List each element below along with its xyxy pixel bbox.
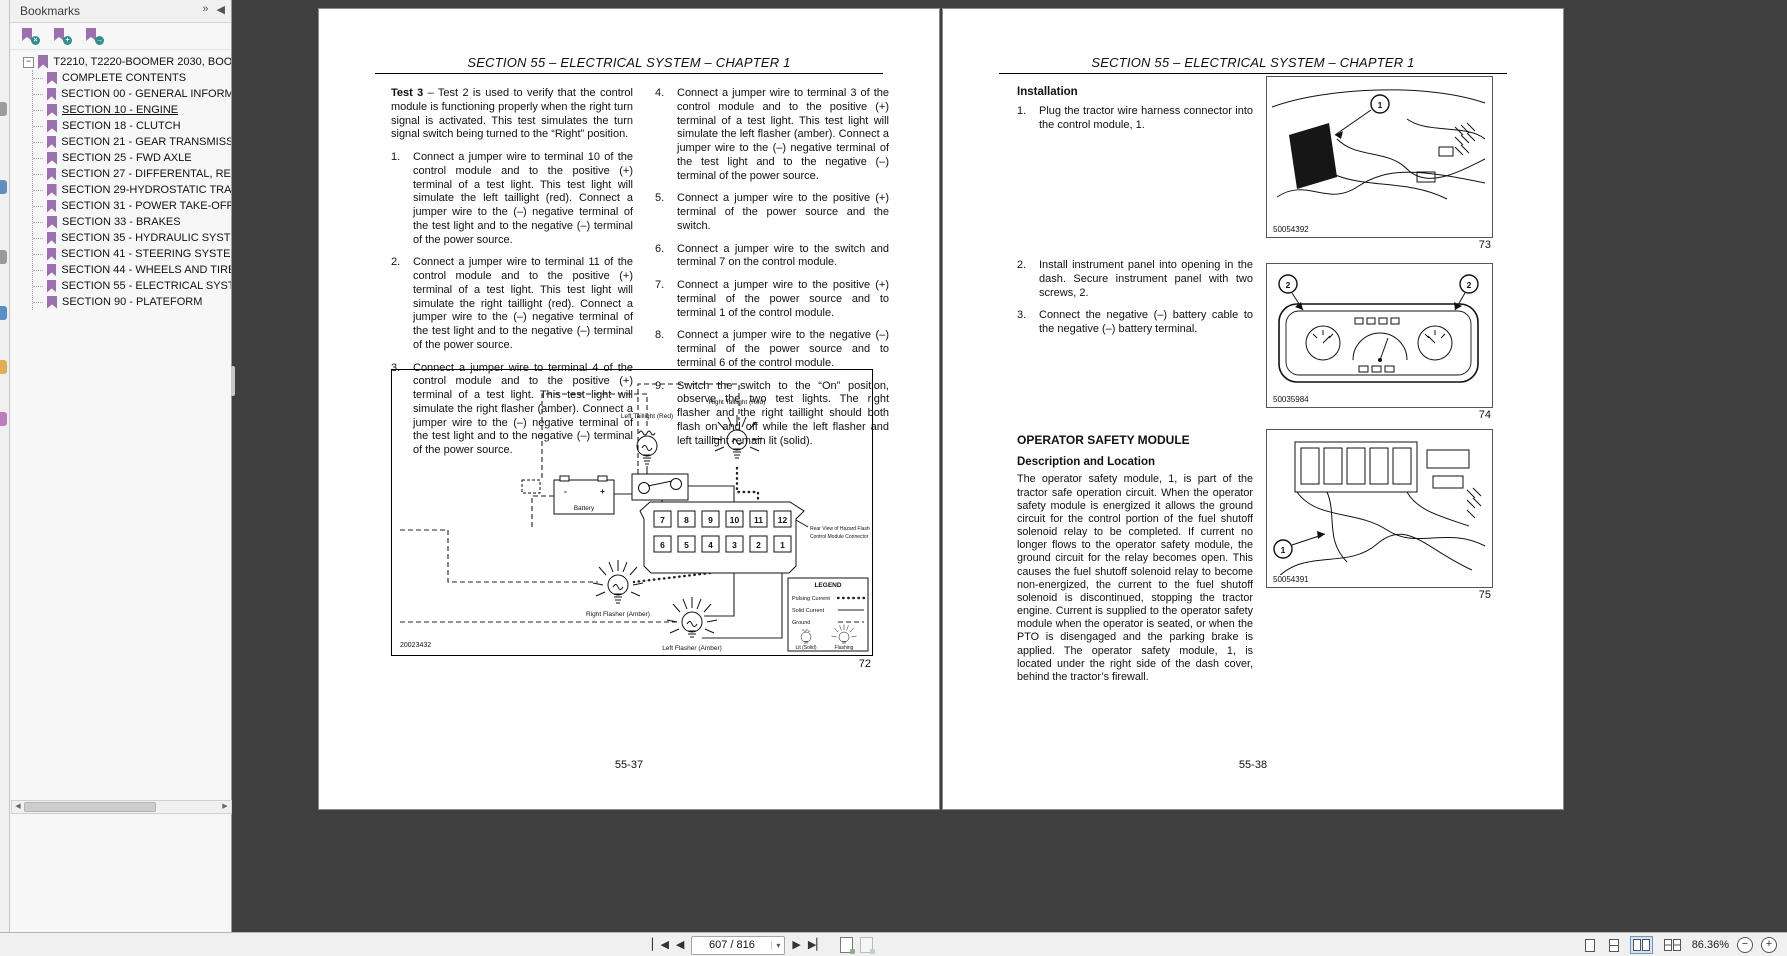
side-panel-icon[interactable] (0, 102, 7, 116)
battery-minus-label: - (564, 486, 567, 496)
bookmark-label: SECTION 55 - ELECTRICAL SYSTE (61, 280, 231, 292)
photo-code: 50054392 (1271, 225, 1311, 234)
right-taillight-bulb (712, 415, 762, 458)
bookmark-icon (47, 232, 56, 245)
section-header: SECTION 55 – ELECTRICAL SYSTEM – CHAPTER… (375, 55, 883, 70)
bookmark-item-section-21[interactable]: SECTION 21 - GEAR TRANSMISSIO (33, 134, 231, 150)
figure-number-74: 74 (1266, 409, 1491, 421)
ground-wire (532, 496, 554, 530)
bookmark-item-section-90[interactable]: SECTION 90 - PLATEFORM (33, 294, 231, 310)
single-page-view-icon[interactable] (1582, 936, 1598, 955)
side-panel-icon[interactable] (0, 360, 7, 374)
svg-text:9: 9 (708, 515, 713, 525)
artwork-connector (1417, 147, 1453, 182)
photo-code: 50035984 (1271, 395, 1311, 404)
svg-text:11: 11 (754, 515, 763, 525)
left-flasher-label: Left Flasher (Amber) (662, 645, 722, 652)
side-panel-icon[interactable] (0, 180, 7, 194)
figure-number-75: 75 (1266, 589, 1491, 601)
bookmark-icon (47, 200, 56, 213)
bottom-toolbar: ▏◀ ◀ 607 / 816 ▾ ▶ ▶▏ 86.36% − + (0, 932, 1787, 956)
svg-text:6: 6 (660, 540, 665, 550)
add-badge-icon: + (63, 36, 72, 45)
artwork-line (1333, 174, 1447, 199)
panel-horizontal-scrollbar[interactable]: ◀ ▶ (11, 800, 232, 814)
list-item: 6.Connect a jumper wire to the switch an… (655, 243, 889, 271)
item-number: 8. (655, 329, 669, 370)
bookmark-item-section-41[interactable]: SECTION 41 - STEERING SYSTEMS (33, 246, 231, 262)
legend-solid-label: Solid Current (792, 608, 825, 614)
figure-number-73: 73 (1266, 239, 1491, 251)
legend-title: LEGEND (814, 582, 841, 589)
bookmark-root[interactable]: − T2210, T2220-BOOMER 2030, BOOM (10, 54, 231, 70)
item-text: Connect a jumper wire to terminal 10 of … (413, 151, 633, 247)
bookmark-label: SECTION 33 - BRAKES (62, 216, 181, 228)
ground-wire (542, 394, 647, 478)
solid-wire (702, 573, 782, 638)
artwork-line (1297, 492, 1485, 546)
callout-leader (1335, 110, 1371, 135)
facing-continuous-view-icon[interactable] (1661, 936, 1684, 954)
control-module-art (1289, 123, 1337, 189)
item-text: Connect a jumper wire to the switch and … (677, 243, 889, 271)
battery-plus-label: + (600, 486, 605, 496)
zoom-out-button[interactable]: − (1737, 937, 1753, 953)
zoom-in-button[interactable]: + (1761, 937, 1777, 953)
list-item: 2.Connect a jumper wire to terminal 11 o… (391, 256, 633, 352)
bookmark-item-section-29[interactable]: SECTION 29-HYDROSTATIC TRAN (33, 182, 231, 198)
pdf-page-left: SECTION 55 – ELECTRICAL SYSTEM – CHAPTER… (318, 8, 940, 810)
bookmark-icon (47, 152, 57, 165)
osm-heading: OPERATOR SAFETY MODULE (1017, 433, 1253, 448)
scrollbar-thumb[interactable] (24, 802, 156, 812)
item-text: Connect a jumper wire to the positive (+… (677, 279, 889, 320)
intro-paragraph: Test 3 – Test 2 is used to verify that t… (391, 87, 633, 142)
bookmark-icon (47, 184, 57, 197)
splitter-grip-icon (231, 366, 235, 396)
item-number: 3. (1017, 309, 1031, 337)
left-flasher-bulb (667, 597, 717, 637)
caption-leader (796, 520, 808, 527)
item-text: Connect a jumper wire to the negative (–… (677, 329, 889, 370)
goto-bookmark-button[interactable]: → (86, 28, 102, 44)
wiring-diagram: - + Battery Switch 7 8 9 10 11 12 (391, 369, 873, 656)
last-page-button[interactable]: ▶▏ (808, 936, 825, 954)
page-number-input[interactable]: 607 / 816 ▾ (691, 936, 785, 955)
bookmark-icon (47, 264, 56, 277)
svg-text:5: 5 (684, 540, 689, 550)
bookmark-item-section-31[interactable]: SECTION 31 - POWER TAKE-OFF S (33, 198, 231, 214)
installation-block: Installation 1.Plug the tractor wire har… (1017, 85, 1253, 133)
item-text: Plug the tractor wire harness connector … (1039, 105, 1253, 133)
battery-label: Battery (574, 505, 595, 512)
osm-body: The operator safety module, 1, is part o… (1017, 473, 1253, 684)
ground-node (522, 480, 540, 493)
bookmark-label: SECTION 18 - CLUTCH (62, 120, 181, 132)
battery-terminal (560, 476, 569, 481)
diagram-part-number: 20023432 (400, 642, 431, 649)
side-icon-strip[interactable] (0, 0, 10, 932)
bookmark-icon (47, 120, 57, 133)
list-item: 3.Connect the negative (–) battery cable… (1017, 309, 1253, 337)
artwork-hatch (1467, 488, 1481, 518)
panel-splitter[interactable] (231, 0, 236, 932)
app-window: Bookmarks » ◀ × + → − T22 (0, 0, 1787, 956)
panel-collapse-icon[interactable]: ◀ (217, 3, 225, 16)
next-page-button[interactable]: ▶ (792, 936, 800, 954)
chevron-down-icon[interactable]: ▾ (771, 941, 784, 950)
right-flasher-label: Right Flasher (Amber) (586, 611, 650, 618)
page-number-left: 55-37 (319, 759, 939, 771)
header-rule (999, 73, 1507, 74)
bookmark-label: SECTION 35 - HYDRAULIC SYSTEM (61, 232, 231, 244)
bookmark-item-complete-contents[interactable]: COMPLETE CONTENTS (33, 70, 231, 86)
panel-expand-icon[interactable]: » (202, 3, 208, 16)
svg-text:12: 12 (778, 515, 788, 525)
bookmark-icon (47, 248, 56, 261)
bookmark-icon (47, 216, 57, 229)
svg-text:3: 3 (732, 540, 737, 550)
figure-75-photo: 1 50054391 (1266, 429, 1493, 588)
collapse-node-icon[interactable]: − (23, 57, 34, 68)
bookmark-item-section-33[interactable]: SECTION 33 - BRAKES (33, 214, 231, 230)
artwork-line (1407, 492, 1469, 526)
list-item: 7.Connect a jumper wire to the positive … (655, 279, 889, 320)
callout-number: 2 (1286, 280, 1291, 290)
bookmark-icon (47, 296, 57, 309)
legend-lit-label: Lit (Solid) (795, 645, 816, 651)
bookmark-label: SECTION 41 - STEERING SYSTEMS (61, 248, 231, 260)
ground-wire (400, 530, 598, 582)
zoom-level: 86.36% (1692, 939, 1729, 951)
svg-text:4: 4 (708, 540, 713, 550)
pdf-page-right: SECTION 55 – ELECTRICAL SYSTEM – CHAPTER… (942, 8, 1564, 810)
figure-74-photo: 2 2 50035984 (1266, 263, 1493, 408)
item-text: Install instrument panel into opening in… (1039, 259, 1253, 300)
bookmark-icon (47, 136, 56, 149)
right-taillight-label: Right Taillight (Red) (709, 399, 766, 406)
item-number: 5. (655, 192, 669, 233)
previous-view-icon[interactable] (840, 937, 853, 953)
svg-text:8: 8 (684, 515, 689, 525)
legend-ground-label: Ground (792, 620, 810, 626)
list-item: 1.Plug the tractor wire harness connecto… (1017, 105, 1253, 133)
callout-number: 1 (1281, 545, 1286, 555)
item-number: 1. (391, 151, 405, 247)
left-taillight-bulb (637, 431, 657, 464)
bookmark-icon (47, 280, 56, 293)
bookmark-item-section-00[interactable]: SECTION 00 - GENERAL INFORMAT (33, 86, 231, 102)
artwork-line (1277, 534, 1472, 578)
legend-flashing-label: Flashing (835, 645, 854, 651)
bookmarks-panel-title: Bookmarks (20, 4, 80, 18)
bookmark-label: SECTION 00 - GENERAL INFORMAT (61, 88, 231, 100)
bookmark-label: SECTION 31 - POWER TAKE-OFF S (61, 200, 231, 212)
side-panel-icon[interactable] (0, 306, 7, 320)
scroll-right-arrow[interactable]: ▶ (219, 802, 231, 812)
solid-wire (704, 573, 734, 616)
page-number-value[interactable]: 607 / 816 (692, 939, 771, 951)
item-number: 4. (655, 87, 669, 183)
header-rule (375, 73, 883, 74)
bookmark-label: SECTION 21 - GEAR TRANSMISSIO (61, 136, 231, 148)
bookmark-label: SECTION 27 - DIFFERENTAL, REAR (61, 168, 231, 180)
battery-terminal (598, 476, 607, 481)
bookmark-item-section-25[interactable]: SECTION 25 - FWD AXLE (33, 150, 231, 166)
add-bookmark-button[interactable]: + (54, 28, 70, 44)
side-panel-icon[interactable] (0, 412, 7, 426)
switch-box (632, 474, 688, 500)
item-number: 7. (655, 279, 669, 320)
item-text: Connect a jumper wire to terminal 3 of t… (677, 87, 889, 183)
previous-page-button[interactable]: ◀ (676, 936, 684, 954)
bookmarks-panel: Bookmarks » ◀ × + → − T22 (10, 0, 232, 932)
artwork-line (1327, 492, 1347, 562)
facing-view-icon[interactable] (1630, 936, 1653, 954)
figure-number-72: 72 (391, 658, 871, 670)
list-item: 4.Connect a jumper wire to terminal 3 of… (655, 87, 889, 183)
bookmark-icon (47, 168, 56, 181)
bookmark-item-section-55[interactable]: SECTION 55 - ELECTRICAL SYSTE (33, 278, 231, 294)
item-number: 1. (1017, 105, 1031, 133)
bookmark-icon (47, 104, 57, 117)
side-panel-icon[interactable] (0, 250, 7, 264)
photo-code: 50054391 (1271, 575, 1311, 584)
callout-arrowhead (1317, 531, 1325, 539)
legend-pulsing-label: Pulsing Current (792, 596, 830, 602)
bookmark-item-section-10[interactable]: SECTION 10 - ENGINE (33, 102, 231, 118)
artwork-connector (1427, 450, 1469, 488)
artwork-hatch (1455, 123, 1475, 155)
svg-text:1: 1 (780, 540, 785, 550)
page-number-right: 55-38 (943, 759, 1563, 771)
bookmark-icon (47, 88, 56, 101)
bookmark-label: SECTION 44 - WHEELS AND TIRES (61, 264, 231, 276)
bookmarks-panel-header: Bookmarks » ◀ (10, 0, 231, 23)
bookmark-label: SECTION 25 - FWD AXLE (62, 152, 192, 164)
bookmark-item-section-35[interactable]: SECTION 35 - HYDRAULIC SYSTEM (33, 230, 231, 246)
connector-caption: Control Module Connector (810, 534, 869, 540)
bookmark-icon (38, 55, 48, 69)
svg-text:10: 10 (730, 515, 740, 525)
bookmarks-tree: − T2210, T2220-BOOMER 2030, BOOM COMPLET… (10, 50, 231, 310)
scroll-left-arrow[interactable]: ◀ (12, 802, 24, 812)
osm-subheading: Description and Location (1017, 455, 1253, 469)
list-item: 2.Install instrument panel into opening … (1017, 259, 1253, 300)
continuous-view-icon[interactable] (1606, 936, 1622, 955)
svg-text:2: 2 (756, 540, 761, 550)
bookmark-item-section-27[interactable]: SECTION 27 - DIFFERENTAL, REAR (33, 166, 231, 182)
right-flasher-bulb (593, 560, 643, 603)
bookmark-label: COMPLETE CONTENTS (62, 72, 186, 84)
goto-badge-icon: → (95, 36, 104, 45)
delete-badge-icon: × (31, 36, 40, 45)
item-text: Connect a jumper wire to terminal 11 of … (413, 256, 633, 352)
item-number: 2. (391, 256, 405, 352)
bookmark-label: SECTION 10 - ENGINE (62, 104, 178, 116)
item-text: Connect a jumper wire to the positive (+… (677, 192, 889, 233)
operator-safety-module-block: OPERATOR SAFETY MODULE Description and L… (1017, 433, 1253, 684)
bookmark-item-section-44[interactable]: SECTION 44 - WHEELS AND TIRES (33, 262, 231, 278)
page-navigation: ▏◀ ◀ 607 / 816 ▾ ▶ ▶▏ (652, 935, 873, 955)
intro-bold: Test 3 (391, 87, 423, 99)
needle-hub (1378, 358, 1382, 362)
intro-text: – Test 2 is used to verify that the cont… (391, 87, 633, 140)
bookmark-label: SECTION 90 - PLATEFORM (62, 296, 202, 308)
figure-73-photo: 1 50054392 (1266, 76, 1493, 238)
callout-number: 1 (1378, 100, 1383, 110)
item-number: 6. (655, 243, 669, 271)
list-item: 8.Connect a jumper wire to the negative … (655, 329, 889, 370)
left-taillight-label: Left Taillight (Red) (621, 413, 673, 420)
installation-heading: Installation (1017, 85, 1253, 99)
bookmark-item-section-18[interactable]: SECTION 18 - CLUTCH (33, 118, 231, 134)
delete-bookmark-button[interactable]: × (22, 28, 38, 44)
bookmarks-toolbar: × + → (10, 23, 231, 50)
diagram-legend: LEGEND Pulsing Current Solid Current Gro… (788, 578, 868, 651)
callout-number: 2 (1467, 280, 1472, 290)
bookmark-label: SECTION 29-HYDROSTATIC TRAN (62, 184, 231, 196)
bookmark-icon (47, 72, 57, 85)
item-number: 2. (1017, 259, 1031, 300)
section-header: SECTION 55 – ELECTRICAL SYSTEM – CHAPTER… (999, 55, 1507, 70)
connector-caption: Rear View of Hazard Flasher (810, 526, 870, 532)
next-view-icon[interactable] (860, 937, 873, 953)
list-item: 5.Connect a jumper wire to the positive … (655, 192, 889, 233)
item-text: Connect the negative (–) battery cable t… (1039, 309, 1253, 337)
svg-text:7: 7 (660, 515, 665, 525)
first-page-button[interactable]: ▏◀ (652, 936, 669, 954)
list-item: 1.Connect a jumper wire to terminal 10 o… (391, 151, 633, 247)
installation-steps-2-3: 2.Install instrument panel into opening … (1017, 259, 1253, 337)
bookmark-root-label: T2210, T2220-BOOMER 2030, BOOM (53, 56, 231, 68)
zoom-controls: 86.36% − + (1582, 935, 1777, 955)
pulsing-wire (634, 573, 710, 582)
